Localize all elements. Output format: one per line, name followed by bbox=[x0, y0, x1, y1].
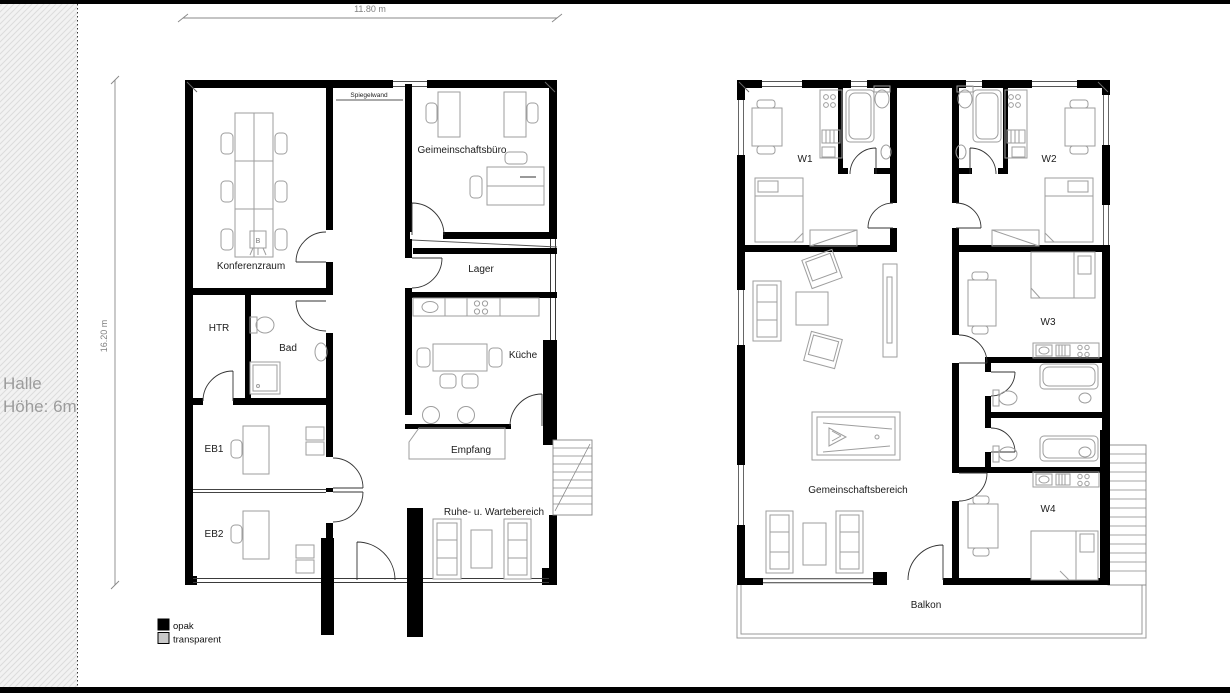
common-area-furniture bbox=[753, 249, 900, 573]
hall-label-line2: Höhe: 6m bbox=[3, 397, 77, 416]
sink-icon bbox=[315, 343, 327, 361]
billiard-table bbox=[812, 412, 900, 460]
room-label-htr: HTR bbox=[209, 323, 230, 334]
room-label-gemeinschaftsbereich: Gemeinschaftsbereich bbox=[808, 485, 908, 496]
room-label-konferenzraum: Konferenzraum bbox=[217, 261, 285, 272]
w2-furniture bbox=[956, 86, 1095, 246]
room-label-eb1: EB1 bbox=[205, 444, 224, 455]
room-label-w4: W4 bbox=[1041, 504, 1056, 515]
height-dimension-label: 16.20 m bbox=[99, 320, 109, 353]
floor-plan-canvas: Halle Höhe: 6m 11.80 m 16.20 m bbox=[0, 0, 1230, 693]
legend-swatch-transparent bbox=[158, 633, 169, 644]
room-label-gemeinschaftsbuero: Geimeinschaftsbüro bbox=[418, 145, 507, 156]
room-label-balkon: Balkon bbox=[911, 600, 942, 611]
entrance-wall-fin-right bbox=[407, 508, 423, 637]
w1-furniture bbox=[752, 86, 891, 246]
eb1-furniture bbox=[231, 426, 324, 474]
balcony bbox=[737, 585, 1146, 638]
legend-label-transparent: transparent bbox=[173, 635, 221, 646]
legend-swatch-opak bbox=[158, 619, 169, 630]
room-label-bad: Bad bbox=[279, 343, 297, 354]
toilet-icon bbox=[250, 317, 274, 333]
office-floor-plan: B bbox=[185, 80, 592, 637]
w3-furniture bbox=[968, 252, 1099, 358]
w4-furniture bbox=[968, 472, 1099, 580]
room-label-eb2: EB2 bbox=[205, 529, 224, 540]
shower-icon bbox=[250, 362, 280, 394]
room-label-w2: W2 bbox=[1042, 154, 1057, 165]
eb2-furniture bbox=[231, 511, 314, 573]
room-label-w1: W1 bbox=[798, 154, 813, 165]
residential-floor-plan: W1 W2 W3 W4 Gemeinschaftsbereich Balkon bbox=[737, 80, 1146, 638]
legend-label-opak: opak bbox=[173, 621, 194, 632]
top-frame-bar bbox=[0, 0, 1230, 4]
width-dimension-label: 11.80 m bbox=[354, 4, 386, 14]
room-label-w3: W3 bbox=[1041, 317, 1056, 328]
room-label-lager: Lager bbox=[468, 264, 494, 275]
waiting-area-furniture bbox=[433, 519, 531, 579]
hall-label-line1: Halle bbox=[3, 374, 42, 393]
residential-staircase bbox=[1100, 430, 1146, 585]
kitchen-table bbox=[417, 344, 502, 388]
room-label-spiegelwand: Spiegelwand bbox=[350, 92, 388, 99]
office-bottom-glass-wall bbox=[193, 579, 549, 583]
kitchen-counter bbox=[413, 298, 539, 316]
residential-bottom-glass bbox=[763, 579, 873, 583]
hall-strip: Halle Höhe: 6m bbox=[0, 4, 78, 687]
office-staircase bbox=[553, 440, 592, 515]
dimension-height: 16.20 m bbox=[99, 76, 119, 589]
bottom-frame-bar bbox=[0, 687, 1230, 693]
dimension-width: 11.80 m bbox=[178, 4, 562, 22]
legend: opak transparent bbox=[158, 619, 221, 646]
room-label-ruhe-wartebereich: Ruhe- u. Wartebereich bbox=[444, 507, 544, 518]
room-label-kueche: Küche bbox=[509, 350, 538, 361]
flipchart-label: B bbox=[256, 238, 261, 245]
room-label-empfang: Empfang bbox=[451, 445, 491, 456]
conference-table bbox=[221, 113, 287, 257]
